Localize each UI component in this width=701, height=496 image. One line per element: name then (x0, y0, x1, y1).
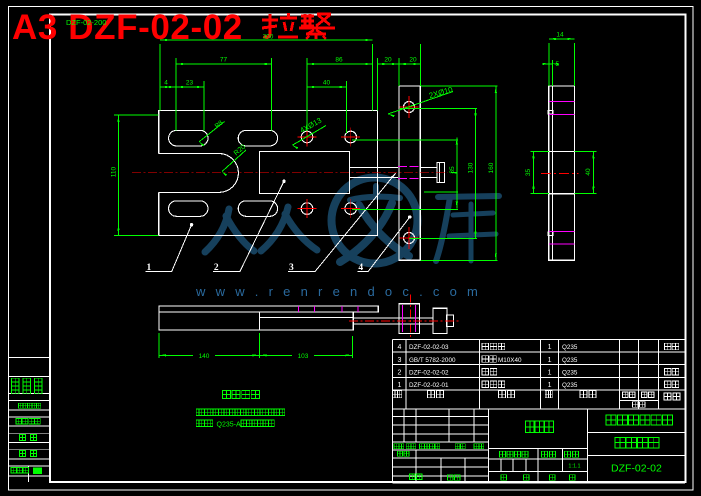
svg-text:35: 35 (525, 169, 532, 177)
svg-text:1: 1 (548, 382, 552, 389)
svg-text:40: 40 (323, 80, 331, 87)
svg-text:M10X40: M10X40 (498, 357, 522, 364)
svg-text:130: 130 (468, 162, 475, 173)
svg-text:23: 23 (186, 80, 194, 87)
svg-text:77: 77 (220, 57, 228, 64)
svg-text:1: 1 (397, 382, 401, 389)
svg-text:5: 5 (556, 61, 560, 68)
svg-text:4: 4 (164, 80, 168, 87)
svg-text:DZF-02-200: DZF-02-200 (66, 18, 106, 27)
svg-text:1: 1 (548, 357, 552, 364)
svg-text:1: 1 (147, 263, 152, 273)
svg-text:1: 1 (548, 344, 552, 351)
svg-text:110: 110 (110, 166, 117, 177)
svg-text:40: 40 (585, 168, 592, 176)
svg-text:DZF-02-02-03: DZF-02-02-03 (409, 344, 449, 351)
svg-text:GB/T 5782-2000: GB/T 5782-2000 (409, 357, 456, 364)
svg-text:1: 1 (548, 369, 552, 376)
svg-text:Q235: Q235 (562, 344, 578, 351)
svg-text:20: 20 (384, 56, 392, 63)
svg-text:103: 103 (298, 353, 309, 360)
svg-text:Q235-A,: Q235-A, (217, 421, 243, 428)
svg-text:2: 2 (214, 263, 219, 273)
svg-text:86: 86 (335, 57, 343, 64)
svg-text:1:1.1: 1:1.1 (568, 464, 580, 470)
svg-text:14: 14 (556, 31, 564, 38)
svg-text:A3 DZF-02-02: A3 DZF-02-02 (12, 8, 243, 47)
svg-text:140: 140 (199, 353, 210, 360)
svg-text:DZF-02-02: DZF-02-02 (611, 462, 662, 474)
svg-text:300: 300 (263, 34, 274, 41)
svg-text:DZF-02-02-01: DZF-02-02-01 (409, 382, 449, 389)
svg-text:Q235: Q235 (562, 357, 578, 364)
svg-text:4: 4 (397, 344, 401, 351)
svg-text:DZF-02-02-02: DZF-02-02-02 (409, 369, 449, 376)
svg-text:Q235: Q235 (562, 369, 578, 376)
svg-text:w w w . r e n r e n d o c . c: w w w . r e n r e n d o c . c o m (195, 284, 481, 299)
svg-text:4: 4 (358, 263, 363, 273)
svg-text:3: 3 (289, 263, 294, 273)
svg-text:20: 20 (409, 56, 417, 63)
svg-text:3: 3 (397, 357, 401, 364)
svg-text:2: 2 (397, 369, 401, 376)
svg-text:160: 160 (488, 162, 495, 173)
svg-text:Q235: Q235 (562, 382, 578, 389)
